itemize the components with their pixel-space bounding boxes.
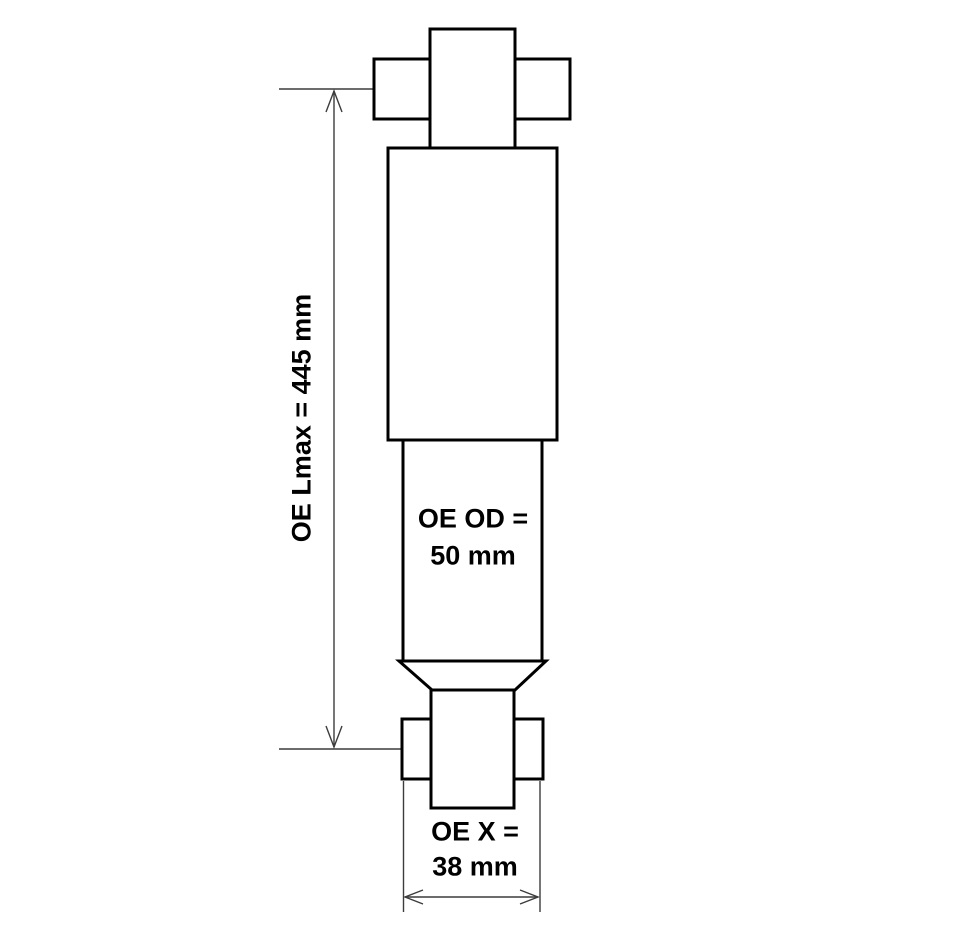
lower-taper xyxy=(399,661,546,690)
lmax-dimension-label: OE Lmax = 445 mm xyxy=(287,294,318,542)
lower-mount-left-lug xyxy=(402,719,432,779)
outer-body xyxy=(388,148,557,440)
shock-absorber-body xyxy=(374,29,570,808)
od-dimension-label-line1: OE OD = xyxy=(418,504,528,535)
upper-mount-left-lug xyxy=(374,59,430,119)
x-dimension-label-line1: OE X = xyxy=(431,817,519,848)
shock-absorber-drawing xyxy=(0,0,958,943)
lower-mount-stem xyxy=(431,690,514,808)
upper-mount-right-lug xyxy=(515,59,570,119)
x-dimension-label-line2: 38 mm xyxy=(432,852,518,883)
shock-absorber-diagram: OE Lmax = 445 mm OE OD = 50 mm OE X = 38… xyxy=(0,0,958,943)
lower-mount-right-lug xyxy=(514,719,543,779)
od-dimension-label-line2: 50 mm xyxy=(430,541,516,572)
upper-mount-stem xyxy=(430,29,515,148)
